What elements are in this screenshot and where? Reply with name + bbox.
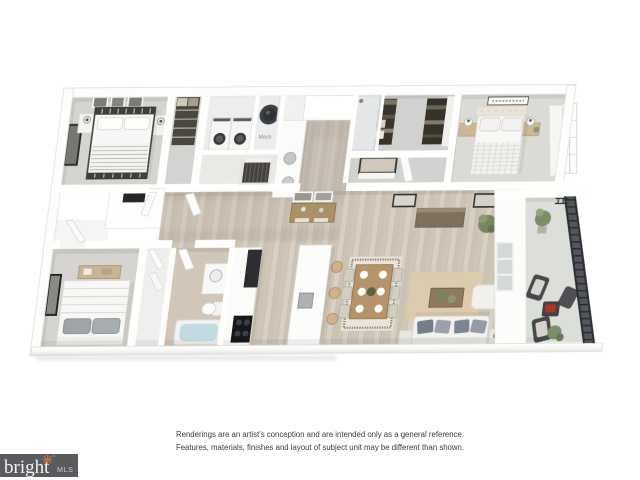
svg-text:MLS: MLS — [57, 465, 74, 474]
svg-text:bright: bright — [4, 457, 50, 478]
svg-text:Features, materials, finishes: Features, materials, finishes and layout… — [176, 443, 464, 452]
svg-text:Renderings are an artist's con: Renderings are an artist's conception an… — [176, 430, 464, 439]
svg-text:Mech: Mech — [258, 135, 272, 141]
